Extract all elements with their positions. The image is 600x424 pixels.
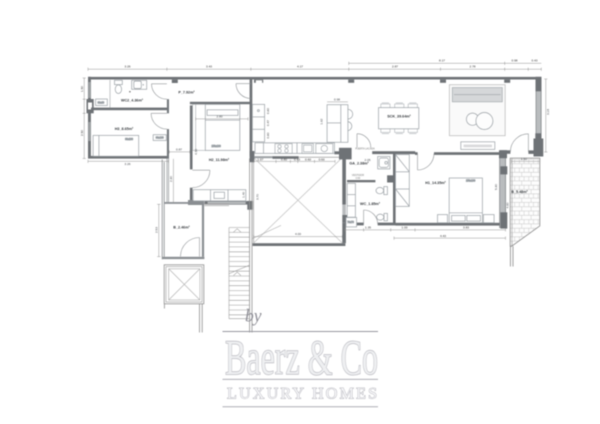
svg-text:3.83: 3.83 [463, 226, 469, 230]
svg-text:0.87: 0.87 [176, 147, 182, 151]
svg-text:H2_11.98m²: H2_11.98m² [209, 158, 230, 162]
svg-text:90x60: 90x60 [98, 102, 105, 105]
svg-text:4.17: 4.17 [297, 64, 303, 68]
svg-text:5.90: 5.90 [494, 184, 498, 190]
svg-text:4.60: 4.60 [506, 202, 510, 208]
svg-text:3.43: 3.43 [206, 64, 212, 68]
svg-text:1.62: 1.62 [320, 118, 324, 124]
svg-text:2.50: 2.50 [80, 130, 84, 136]
svg-text:P_7.92m²: P_7.92m² [178, 91, 195, 95]
svg-text:0.43: 0.43 [294, 157, 300, 161]
svg-text:H3_8.65m²: H3_8.65m² [115, 127, 134, 131]
svg-text:0.47: 0.47 [266, 120, 270, 126]
svg-text:0.60: 0.60 [266, 108, 270, 114]
svg-text:1.07: 1.07 [257, 157, 263, 161]
svg-text:150x190: 150x190 [466, 180, 476, 183]
svg-text:SCK_39.64m²: SCK_39.64m² [387, 114, 411, 118]
svg-text:1.00: 1.00 [401, 226, 407, 230]
svg-text:1.50: 1.50 [80, 86, 84, 92]
svg-text:0.80: 0.80 [281, 157, 287, 161]
svg-text:0.60: 0.60 [266, 132, 270, 138]
svg-text:3.26: 3.26 [124, 162, 130, 166]
svg-text:GA_2.38m²: GA_2.38m² [349, 161, 369, 165]
svg-text:Baerz & Co: Baerz & Co [225, 329, 378, 385]
svg-text:4.00: 4.00 [295, 232, 301, 236]
svg-text:1.50: 1.50 [521, 157, 527, 161]
svg-text:LUXURY HOMES: LUXURY HOMES [227, 385, 377, 402]
svg-text:0.98: 0.98 [511, 59, 517, 63]
svg-text:PUERTA LACADA: PUERTA LACADA [355, 148, 375, 151]
svg-text:3.26: 3.26 [124, 64, 130, 68]
svg-text:0.60: 0.60 [305, 157, 311, 161]
svg-text:0.90: 0.90 [356, 177, 361, 180]
svg-text:1.35: 1.35 [365, 226, 371, 230]
svg-text:by: by [245, 306, 262, 326]
svg-text:2.78: 2.78 [469, 64, 475, 68]
svg-text:2.53: 2.53 [154, 227, 158, 233]
svg-text:WC2_4.36m²: WC2_4.36m² [121, 99, 144, 103]
svg-text:3.18: 3.18 [546, 109, 550, 115]
svg-text:2.80: 2.80 [216, 115, 222, 119]
svg-text:90x190: 90x190 [125, 138, 134, 141]
svg-text:70x70: 70x70 [347, 221, 354, 224]
svg-text:H1_14.35m²: H1_14.35m² [425, 181, 446, 185]
svg-text:2.87: 2.87 [392, 64, 398, 68]
svg-text:3.70: 3.70 [256, 194, 260, 200]
svg-text:90x190: 90x190 [156, 137, 165, 140]
svg-text:B_2.46m²: B_2.46m² [173, 226, 190, 230]
svg-text:0.98: 0.98 [334, 98, 340, 102]
svg-text:1.40: 1.40 [242, 192, 246, 198]
svg-text:0.43: 0.43 [531, 59, 537, 63]
svg-text:WC_1.85m²: WC_1.85m² [360, 202, 381, 206]
svg-text:2.05: 2.05 [364, 158, 370, 162]
svg-text:2.90: 2.90 [169, 176, 173, 182]
svg-text:0.60: 0.60 [319, 157, 325, 161]
svg-text:B_5.48m²: B_5.48m² [511, 190, 528, 194]
svg-text:8.17: 8.17 [439, 59, 445, 63]
svg-text:4.50: 4.50 [194, 149, 198, 155]
svg-text:4.43: 4.43 [440, 234, 446, 238]
svg-text:150x190: 150x190 [212, 145, 222, 148]
